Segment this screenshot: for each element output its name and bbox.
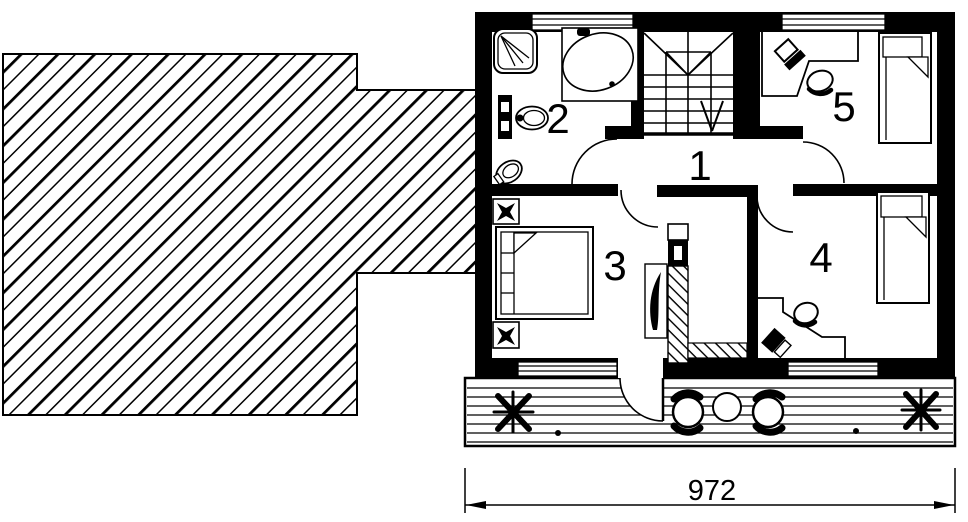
- dimension-arrow-left: [466, 501, 486, 509]
- terrace-table: [713, 393, 741, 421]
- room-label-1: 1: [688, 142, 711, 189]
- shelf-with-decor: [645, 264, 667, 338]
- wall-bath-bottom: [492, 184, 618, 196]
- window: [518, 362, 617, 376]
- dimension-value: 972: [688, 475, 736, 507]
- terrace: [465, 378, 955, 446]
- terrace-armchair: [673, 393, 703, 432]
- shaft-hatched-strip: [688, 343, 747, 358]
- terrace-armchair: [753, 393, 783, 432]
- wall-room3-room4: [747, 185, 758, 358]
- window: [782, 14, 885, 30]
- single-bed: [877, 192, 929, 303]
- wall-hall-room5: [733, 126, 803, 139]
- plant-icon: [902, 390, 940, 430]
- single-bed: [879, 33, 931, 143]
- nightstand-lamp-icon: [493, 322, 519, 348]
- room-label-2: 2: [546, 95, 569, 142]
- bathtub-icon: [555, 23, 642, 101]
- nightstand-lamp-icon: [493, 199, 519, 224]
- floor-plan-canvas: 1 2 3 4 5 972: [0, 0, 968, 522]
- room-label-5: 5: [832, 83, 855, 130]
- terrace-dot: [555, 430, 561, 436]
- wall-stairs-room5: [733, 32, 760, 139]
- chimney-shaft: [668, 224, 688, 363]
- window: [788, 362, 878, 376]
- shower-icon: [494, 29, 537, 73]
- floor-plan-drawing: 1 2 3 4 5 972: [0, 0, 968, 522]
- wall-bath-stub: [605, 126, 644, 139]
- roof-plane-hatched: [3, 54, 476, 415]
- balcony-door-opening: [618, 358, 663, 378]
- dimension-arrow-right: [934, 501, 954, 509]
- room-label-4: 4: [809, 234, 832, 281]
- room-label-3: 3: [603, 242, 626, 289]
- plant-icon: [494, 392, 533, 432]
- double-bed: [496, 227, 593, 319]
- terrace-dot: [853, 428, 859, 434]
